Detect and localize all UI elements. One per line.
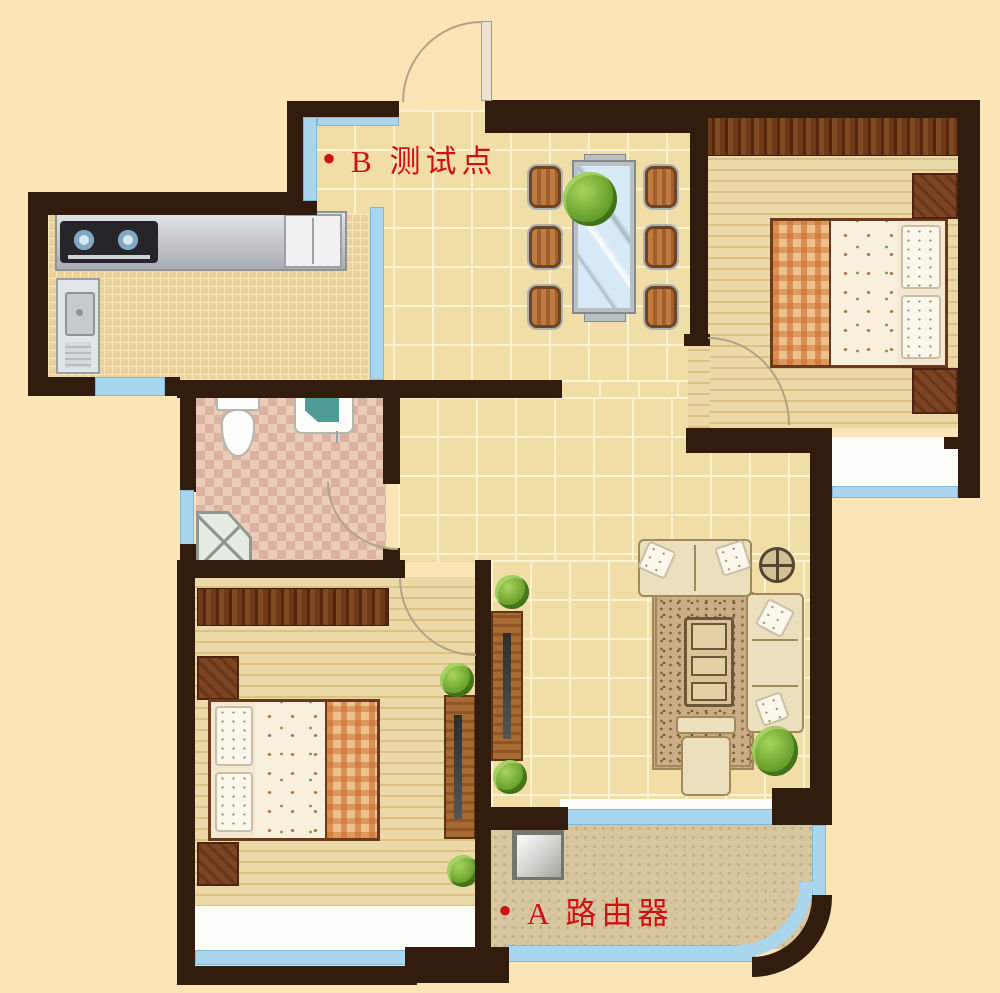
tv-screen <box>503 633 511 739</box>
throw-pillow <box>637 540 677 580</box>
wall <box>944 437 980 449</box>
wall <box>686 428 832 453</box>
kitchen-window <box>95 377 165 396</box>
sofa-seam <box>694 545 696 591</box>
bedroom2-bay-sill <box>195 906 477 952</box>
test-point-b-dot-icon: • <box>322 154 336 164</box>
hall-left-window <box>303 117 317 201</box>
kitchen-glass-partition <box>370 207 384 380</box>
wall <box>28 192 317 215</box>
coffee-table <box>684 617 734 707</box>
wall <box>475 560 491 960</box>
balcony-curved-wall <box>752 895 832 977</box>
bedroom1-bed <box>770 218 948 368</box>
dining-chair <box>529 166 561 208</box>
plant-icon <box>752 726 798 776</box>
dining-chair <box>529 286 561 328</box>
dining-chair <box>529 226 561 268</box>
bedroom2-bed <box>208 699 380 841</box>
wall <box>475 807 568 830</box>
plant-icon <box>440 663 474 697</box>
wall <box>810 452 832 790</box>
bedroom1-bay-window <box>832 486 958 498</box>
entry-door-arc <box>402 21 482 102</box>
dining-chair <box>645 166 677 208</box>
bathroom-window <box>180 490 194 546</box>
wall <box>684 334 710 346</box>
kitchen-sink-cabinet <box>56 278 100 374</box>
balcony-bottom-window <box>505 945 755 962</box>
throw-pillow <box>754 691 790 727</box>
wall <box>28 192 48 395</box>
table-cell <box>691 682 727 701</box>
living-tv-cabinet <box>491 611 523 761</box>
wall <box>485 100 697 133</box>
dining-chair <box>645 226 677 268</box>
wall <box>405 947 509 983</box>
test-point-b-text: B 测试点 <box>351 136 497 181</box>
wall <box>383 398 400 484</box>
table-cell <box>691 623 727 650</box>
sofa-seam <box>752 639 798 641</box>
nightstand <box>197 656 239 700</box>
dining-chair <box>645 286 677 328</box>
wall <box>772 788 832 825</box>
bed-blanket <box>773 221 829 365</box>
plant-icon <box>495 575 529 609</box>
router-a-text: A 路由器 <box>527 888 673 933</box>
bedroom2-wardrobe <box>197 588 389 626</box>
throw-pillow <box>755 598 796 639</box>
stove-handle <box>68 255 150 259</box>
plant-icon <box>493 760 527 794</box>
stove <box>60 221 158 263</box>
bed-pillow <box>901 295 941 359</box>
nightstand <box>197 842 239 886</box>
sink-basin <box>65 292 95 336</box>
router-a-label: • A 路由器 <box>498 888 673 933</box>
bedroom1-wardrobe <box>706 116 958 156</box>
bedroom2-bay-window <box>195 950 408 965</box>
nightstand <box>912 173 958 219</box>
bed-duvet <box>829 221 897 365</box>
bed-pillow <box>901 225 941 289</box>
sofa-seam <box>752 685 798 687</box>
table-plant-icon <box>563 172 617 226</box>
fridge <box>284 214 342 268</box>
test-point-b-label: • B 测试点 <box>322 136 497 181</box>
cabinet-drawers <box>65 342 91 368</box>
burner-icon <box>118 230 138 250</box>
wall <box>690 116 708 334</box>
hall-top-window <box>317 117 399 126</box>
throw-pillow <box>714 539 752 577</box>
wall <box>180 398 196 492</box>
bed-blanket <box>327 702 377 838</box>
bed-duvet <box>255 702 327 838</box>
tv-screen <box>454 715 462 819</box>
basin-tap <box>336 431 338 443</box>
burner-icon <box>74 230 94 250</box>
bedroom2-tv-cabinet <box>444 695 476 839</box>
wall <box>177 380 562 398</box>
wall <box>177 966 417 985</box>
fridge-divider <box>312 218 314 264</box>
bedroom1-door-nook-floor <box>688 340 710 428</box>
wall <box>177 560 405 578</box>
wall <box>28 377 95 396</box>
armchair-back <box>676 716 736 734</box>
router-a-dot-icon: • <box>498 906 512 916</box>
basin-bowl <box>305 398 339 422</box>
nightstand <box>912 368 958 414</box>
router-box <box>512 830 564 880</box>
sink-drain <box>76 309 83 316</box>
entry-door-leaf <box>481 21 492 101</box>
loveseat-sofa <box>638 539 752 597</box>
lamp-cross <box>762 564 792 567</box>
bedroom1-bay-sill <box>832 437 958 488</box>
armchair <box>676 716 736 798</box>
wall <box>287 101 399 117</box>
floor-plan: • B 测试点 • A 路由器 <box>0 0 1000 993</box>
floor-lamp-icon <box>759 547 795 583</box>
balcony-door-glass <box>560 809 802 825</box>
bed-pillow <box>215 706 253 766</box>
armchair-seat <box>681 736 731 796</box>
bed-pillow <box>215 772 253 832</box>
balcony-right-window <box>812 825 826 897</box>
three-seat-sofa <box>746 593 804 733</box>
wall <box>690 100 980 118</box>
wall <box>177 560 195 985</box>
table-cell <box>691 656 727 675</box>
